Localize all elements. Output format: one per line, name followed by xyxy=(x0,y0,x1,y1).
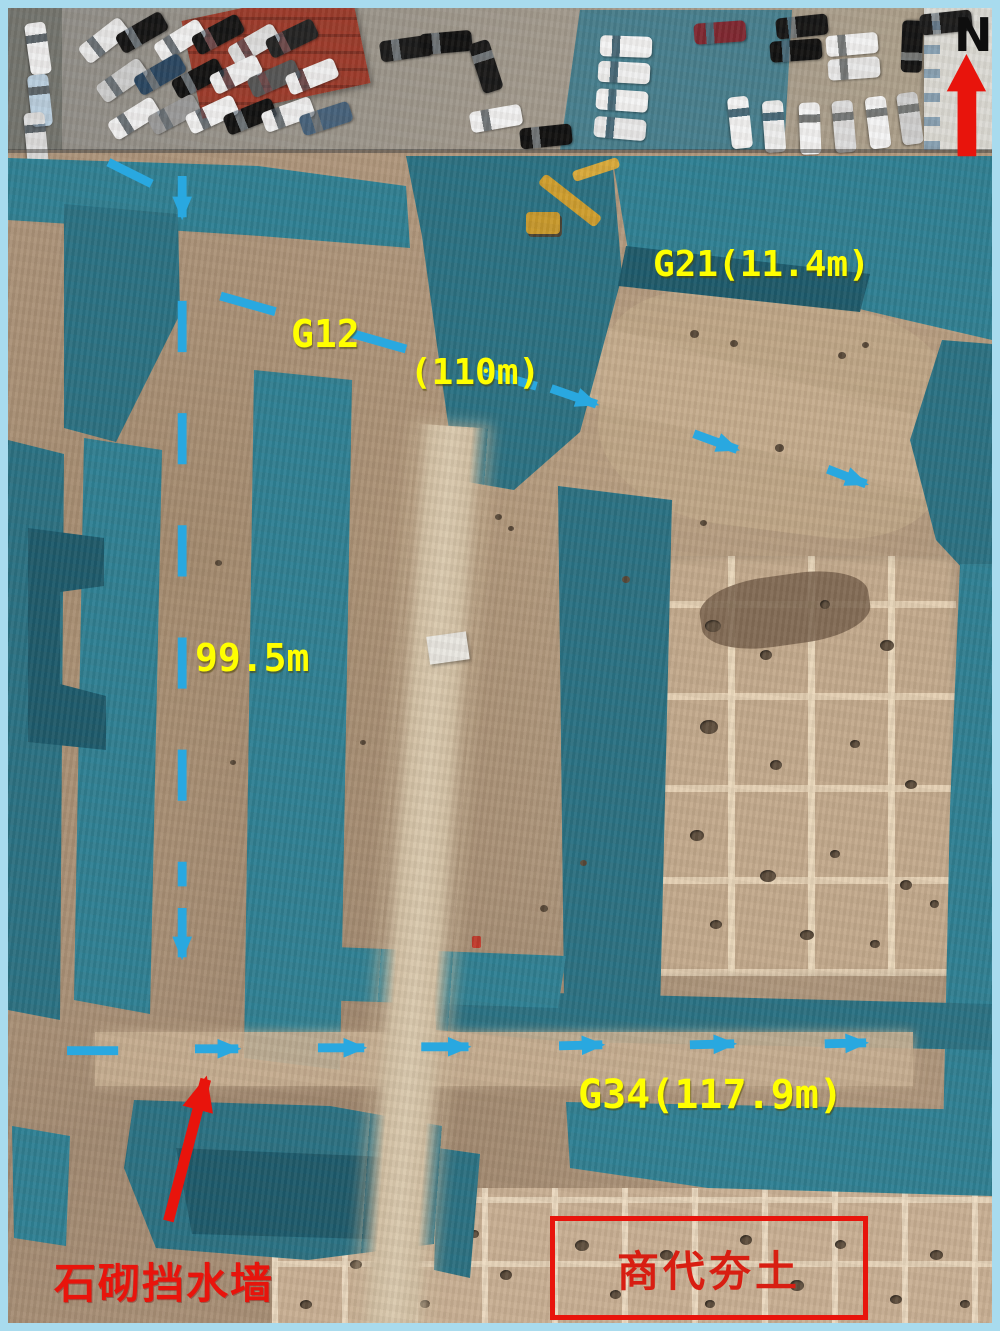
pit xyxy=(705,620,721,632)
pit xyxy=(700,720,718,734)
small-pit xyxy=(215,560,222,566)
car xyxy=(600,35,653,58)
small-pit xyxy=(540,905,548,912)
car xyxy=(799,102,822,155)
pit xyxy=(300,1300,312,1309)
small-pit xyxy=(622,576,630,583)
pit xyxy=(960,1300,970,1308)
excavator xyxy=(520,160,630,250)
label-g21: G21(11.4m) xyxy=(653,244,870,285)
small-pit xyxy=(775,444,784,452)
label-shang-rammed-earth: 商代夯土 xyxy=(617,1238,801,1299)
car xyxy=(23,112,48,166)
small-pit xyxy=(508,526,514,531)
pit xyxy=(890,1295,902,1304)
label-retaining-wall: 石砌挡水墙 xyxy=(54,1250,274,1311)
car xyxy=(827,56,880,81)
car xyxy=(593,116,647,141)
car xyxy=(693,20,746,45)
pit xyxy=(900,880,912,890)
pit xyxy=(905,780,917,789)
small-pit xyxy=(838,352,846,359)
red-object xyxy=(472,936,481,948)
north-label: N xyxy=(954,8,993,62)
white-shed xyxy=(426,631,470,664)
label-g12: G12 xyxy=(291,312,360,356)
car xyxy=(831,100,856,154)
pit xyxy=(870,940,880,948)
pit xyxy=(770,760,782,770)
pit xyxy=(930,900,939,908)
pit xyxy=(710,920,722,929)
car xyxy=(595,88,648,113)
small-pit xyxy=(862,342,869,348)
label-g34: G34(117.9m) xyxy=(578,1072,843,1118)
pit xyxy=(760,870,776,882)
small-pit xyxy=(360,740,366,745)
pit xyxy=(850,740,860,748)
pit xyxy=(820,600,830,609)
small-pit xyxy=(495,514,502,520)
pit xyxy=(930,1250,943,1260)
car xyxy=(769,38,822,63)
car xyxy=(597,61,650,85)
pit xyxy=(760,650,772,660)
photo-stage xyxy=(8,8,992,1323)
pit xyxy=(880,640,894,651)
small-pit xyxy=(700,520,707,526)
site-boundary-fence xyxy=(8,149,992,153)
label-g12-length: (110m) xyxy=(410,352,540,393)
pit xyxy=(830,850,840,858)
small-pit xyxy=(580,860,587,866)
car xyxy=(762,100,787,153)
pit xyxy=(690,830,704,841)
small-pit xyxy=(230,760,236,765)
aerial-photo-figure: N G21(11.4m) G12 (110m) 99.5m G34(117.9m… xyxy=(0,0,1000,1331)
pit xyxy=(500,1270,512,1280)
label-west-trench-length: 99.5m xyxy=(195,636,309,680)
shang-rammed-earth-box: 商代夯土 xyxy=(550,1216,868,1320)
small-pit xyxy=(730,340,738,347)
small-pit xyxy=(690,330,699,338)
pit xyxy=(800,930,814,940)
